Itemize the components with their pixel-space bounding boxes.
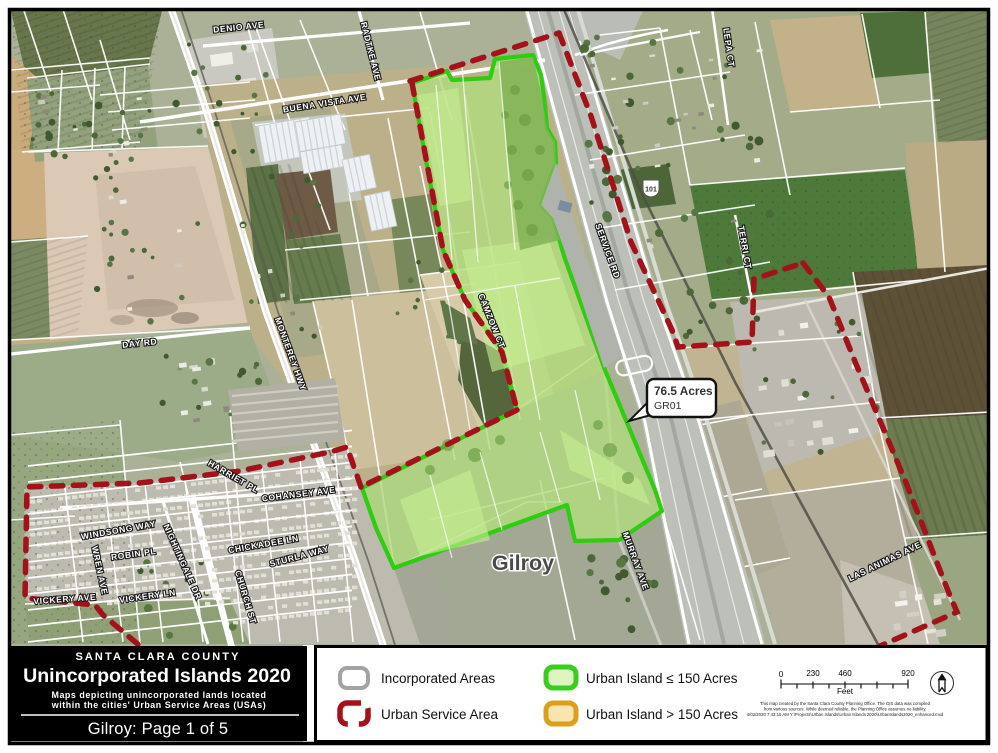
svg-text:from various sources. While de: from various sources. While deemed relia… — [764, 707, 927, 712]
svg-text:Urban Island > 150 Acres: Urban Island > 150 Acres — [586, 707, 738, 722]
svg-text:within the cities' Urban Servi: within the cities' Urban Service Areas (… — [51, 700, 266, 710]
svg-text:0: 0 — [779, 670, 784, 679]
svg-text:Incorporated Areas: Incorporated Areas — [381, 671, 495, 686]
svg-text:Unincorporated Islands 2020: Unincorporated Islands 2020 — [23, 665, 291, 687]
svg-text:4/02/2020 7:43:16 AM Y:\Proje: 4/02/2020 7:43:16 AM Y:\Projects\Urban I… — [747, 712, 944, 717]
svg-text:920: 920 — [901, 669, 915, 678]
svg-text:101: 101 — [645, 187, 657, 194]
svg-text:SANTA CLARA COUNTY: SANTA CLARA COUNTY — [75, 651, 240, 663]
svg-text:460: 460 — [838, 669, 852, 678]
svg-text:230: 230 — [806, 669, 820, 678]
svg-text:GR01: GR01 — [654, 400, 682, 412]
svg-text:This map created by the Santa: This map created by the Santa Clara Coun… — [760, 701, 931, 706]
svg-text:76.5 Acres: 76.5 Acres — [654, 384, 713, 398]
svg-text:Feet: Feet — [837, 687, 854, 696]
svg-text:Maps depicting unincorporated: Maps depicting unincorporated lands loca… — [52, 690, 267, 700]
svg-text:Gilroy: Gilroy — [492, 551, 554, 575]
svg-text:Urban Service Area: Urban Service Area — [381, 707, 499, 722]
svg-text:Gilroy: Page 1 of 5: Gilroy: Page 1 of 5 — [88, 720, 228, 738]
svg-text:Urban Island ≤ 150 Acres: Urban Island ≤ 150 Acres — [586, 671, 738, 686]
